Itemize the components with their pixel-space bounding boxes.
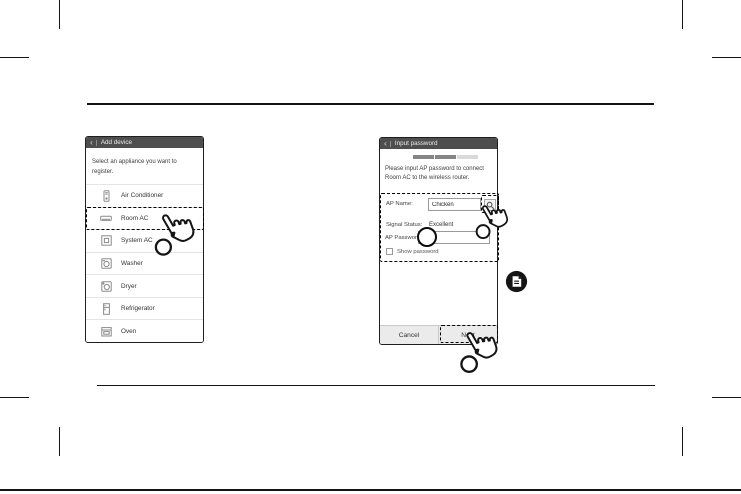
password-field-circle-callout	[417, 227, 437, 247]
intro-text: Select an appliance you want to register…	[86, 148, 190, 184]
top-rule	[87, 103, 654, 105]
crop-mark	[682, 0, 683, 29]
list-item-refrigerator[interactable]: Refrigerator	[86, 297, 203, 320]
list-item-dryer[interactable]: Dryer	[86, 274, 203, 297]
manual-page: ‹ Add device Select an appliance you wan…	[0, 0, 741, 494]
note-icon	[505, 270, 528, 293]
list-item-washer[interactable]: Washer	[86, 252, 203, 275]
instruction-text: Please input AP password to connect Room…	[385, 165, 493, 184]
crop-mark	[0, 57, 29, 58]
crop-mark	[682, 427, 683, 456]
bottom-rule	[97, 385, 655, 386]
crop-mark	[712, 57, 741, 58]
progress-step-1	[413, 155, 434, 159]
system-ac-icon	[100, 235, 112, 247]
header-divider	[390, 141, 391, 147]
back-icon[interactable]: ‹	[90, 138, 93, 147]
crop-mark	[59, 0, 60, 29]
tap-hand-icon	[475, 201, 505, 238]
cancel-button[interactable]: Cancel	[380, 326, 438, 344]
list-item-label: System AC	[121, 237, 153, 244]
crop-mark	[712, 397, 741, 398]
add-device-header: ‹ Add device	[86, 137, 203, 148]
list-item-oven[interactable]: Oven	[86, 319, 203, 342]
refrigerator-icon	[100, 303, 112, 315]
list-item-label: Refrigerator	[121, 305, 155, 312]
oven-icon	[100, 325, 112, 337]
crop-mark	[59, 427, 60, 456]
step-progress-bar	[413, 155, 478, 159]
washer-icon	[100, 258, 112, 270]
page-title: Input password	[395, 140, 438, 147]
progress-step-2	[435, 155, 456, 159]
header-divider	[96, 140, 97, 146]
page-title: Add device	[101, 139, 132, 146]
progress-step-3	[457, 155, 478, 159]
tap-hand-icon	[153, 209, 191, 255]
input-password-header: ‹ Input password	[380, 138, 497, 149]
page-edge-rule	[0, 489, 741, 491]
crop-mark	[0, 397, 29, 398]
list-item-air-conditioner[interactable]: Air Conditioner	[86, 184, 203, 207]
list-item-label: Dryer	[121, 283, 137, 290]
list-item-label: Oven	[121, 328, 136, 335]
list-item-label: Washer	[121, 260, 143, 267]
tap-hand-icon	[458, 327, 494, 371]
dryer-icon	[100, 280, 112, 292]
list-item-label: Air Conditioner	[121, 192, 163, 199]
air-conditioner-icon	[100, 190, 112, 202]
back-icon[interactable]: ‹	[384, 139, 387, 148]
